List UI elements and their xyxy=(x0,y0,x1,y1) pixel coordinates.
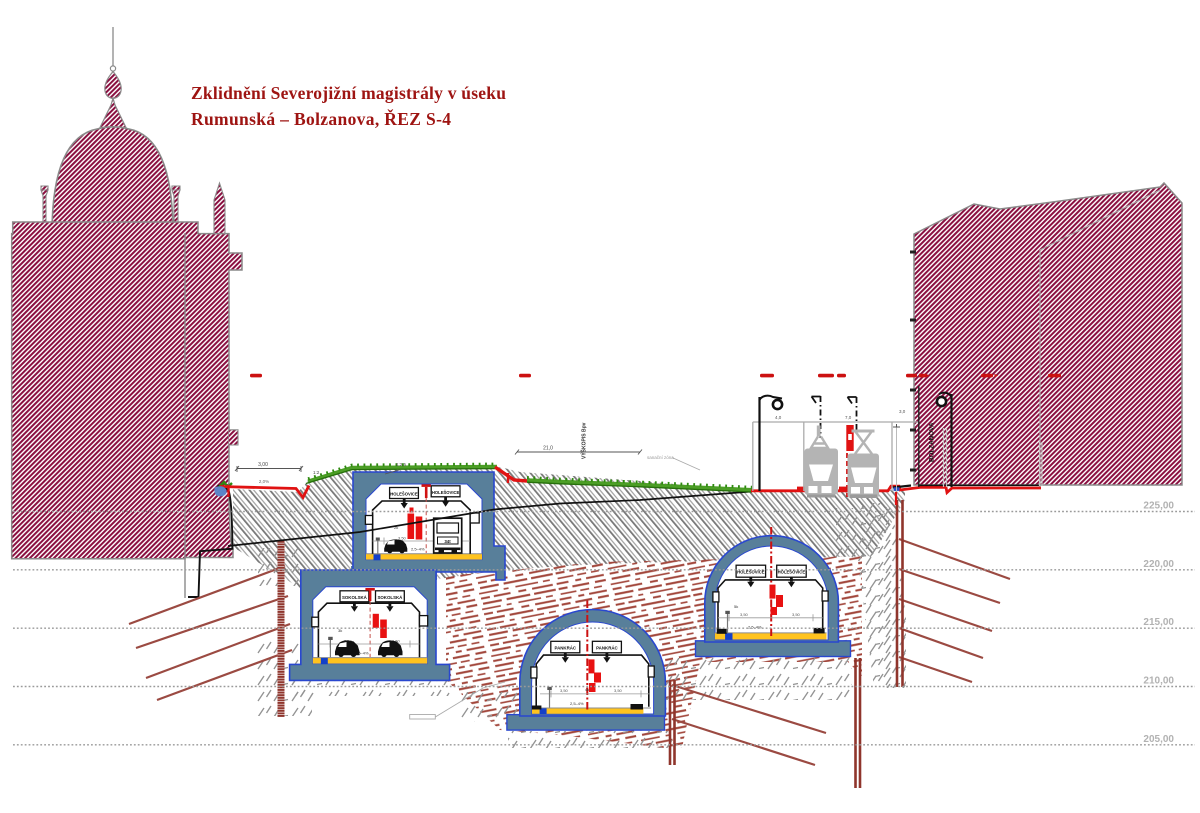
svg-text:SOKOLSKÁ: SOKOLSKÁ xyxy=(342,595,368,600)
svg-text:21,0: 21,0 xyxy=(543,446,553,452)
svg-text:VÝŠKOPIS Bpv: VÝŠKOPIS Bpv xyxy=(580,422,588,459)
svg-text:210,00: 210,00 xyxy=(1143,676,1174,687)
svg-text:3,0: 3,0 xyxy=(899,409,906,414)
svg-text:3,50: 3,50 xyxy=(398,536,407,541)
svg-text:3,00: 3,00 xyxy=(258,462,268,468)
svg-text:34t: 34t xyxy=(444,539,451,544)
svg-text:205,00: 205,00 xyxy=(1143,734,1174,745)
svg-text:SOKOLSKÁ: SOKOLSKÁ xyxy=(377,595,403,600)
svg-text:220,00: 220,00 xyxy=(1143,559,1174,570)
svg-text:HOLEŠOVICE: HOLEŠOVICE xyxy=(432,490,460,495)
svg-text:sanační zóna: sanační zóna xyxy=(647,455,674,460)
svg-text:7,0: 7,0 xyxy=(845,415,852,420)
svg-text:1:2: 1:2 xyxy=(313,470,320,475)
svg-text:225,00: 225,00 xyxy=(1143,501,1174,512)
svg-text:BOLZANOVA: BOLZANOVA xyxy=(929,422,936,462)
svg-text:5k: 5k xyxy=(734,604,738,609)
svg-text:2,5–4%: 2,5–4% xyxy=(570,701,584,706)
svg-text:215,00: 215,00 xyxy=(1143,617,1174,628)
svg-text:1:2,5: 1:2,5 xyxy=(396,462,407,467)
svg-text:4k: 4k xyxy=(585,687,589,692)
svg-text:2,0%: 2,0% xyxy=(259,479,269,484)
svg-text:4,0: 4,0 xyxy=(775,415,782,420)
svg-text:PANKRÁC: PANKRÁC xyxy=(596,646,618,651)
svg-text:Zklidnění Severojižní magistrá: Zklidnění Severojižní magistrály v úseku xyxy=(191,83,506,103)
svg-text:3,50: 3,50 xyxy=(792,612,801,617)
svg-text:HOLEŠOVICE: HOLEŠOVICE xyxy=(390,492,418,497)
svg-text:2,5–4%: 2,5–4% xyxy=(411,547,425,552)
svg-text:PANKRÁC: PANKRÁC xyxy=(554,646,576,651)
svg-text:3,50: 3,50 xyxy=(560,688,569,693)
svg-text:Rumunská – Bolzanova, ŘEZ S-4: Rumunská – Bolzanova, ŘEZ S-4 xyxy=(191,109,451,129)
svg-text:3,50: 3,50 xyxy=(740,612,749,617)
svg-text:3,50: 3,50 xyxy=(614,688,623,693)
